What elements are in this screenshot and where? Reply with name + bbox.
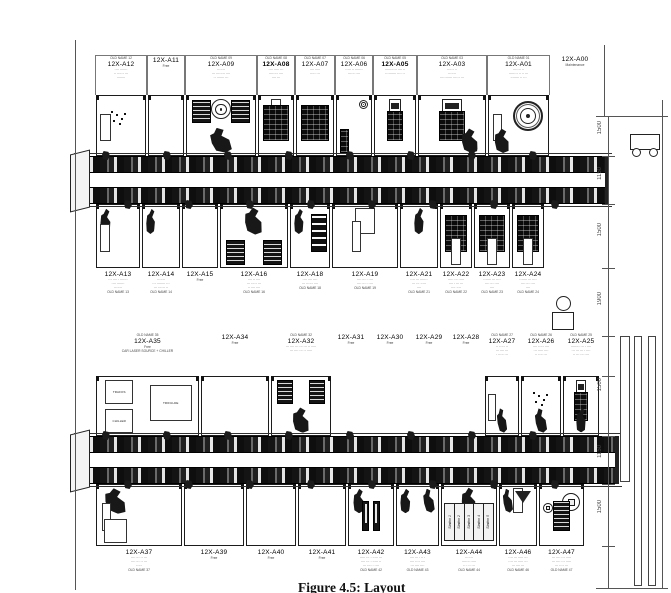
station-label-12X-A44: 12X-A44·············· ······· · ·· ···OL… xyxy=(440,548,498,590)
station-label-12X-A24: 12X-A24······· ··· ········ ··· ········… xyxy=(511,270,545,326)
cabinet-icon xyxy=(301,105,328,140)
station-box-12X-A47 xyxy=(539,484,584,546)
station-subtext: OLD NAME 21 xyxy=(399,291,439,295)
coil-icon xyxy=(359,100,369,110)
station-box-12X-A46 xyxy=(499,484,537,546)
conveyor-band xyxy=(76,436,618,453)
dimension-label: 1500 xyxy=(597,378,603,391)
cabinet-icon xyxy=(387,111,403,141)
support-column xyxy=(634,336,642,586)
station-box-12X-A06 xyxy=(336,95,372,156)
station-subtext: OLD NAME 13 xyxy=(95,291,141,295)
dimension-label: 1500 xyxy=(597,500,603,513)
fixture-icon xyxy=(226,240,244,265)
station-label-12X-A12: OLD NAME 1212X-A12···· ········· ······ … xyxy=(95,55,147,95)
dimension-tick xyxy=(602,376,615,377)
bigcoil-icon xyxy=(513,101,544,132)
station-subtext: OLD NAME 47 xyxy=(538,569,585,573)
station-subtext: Free xyxy=(148,65,184,69)
station-column: Station 1 xyxy=(445,504,454,540)
station-subtext: Maintenance xyxy=(550,64,600,68)
station-subtext: · ····· ··· xyxy=(484,354,520,358)
station-box-12X-A14 xyxy=(142,204,180,268)
station-label-12X-A11: 12X-A11Free xyxy=(147,55,185,95)
dimension-tick xyxy=(602,156,615,157)
station-subtext: OLD NAME 16 xyxy=(219,291,289,295)
station-subtext: OLD NAME 44 xyxy=(440,569,498,573)
station-subtext: OLD NAME 22 xyxy=(439,291,473,295)
station-subtext: ·· ···· ··· xyxy=(520,354,562,358)
station-subtext: ····· ··· xyxy=(296,73,334,77)
station-label-12X-A26: OLD NAME 2612X-A26···· ····· ······· ···… xyxy=(520,333,562,376)
conveyor-band xyxy=(76,187,608,204)
station-box-12X-A16 xyxy=(220,204,288,268)
dimension-label: 1150 xyxy=(597,167,603,180)
panelw-icon xyxy=(451,238,461,264)
station-label-12X-A39: 12X-A39Free xyxy=(183,548,245,590)
robot-icon xyxy=(143,208,158,234)
station-box-12X-A44: Station 1Station 2Station 3Station 4Stat… xyxy=(441,484,497,546)
trolley-wheel-icon xyxy=(556,296,571,311)
dimension-label: 1150 xyxy=(597,445,603,458)
station-label-12X-A31: 12X-A31Free xyxy=(332,333,370,376)
station-subtext: OLD NAME 23 xyxy=(473,291,511,295)
station-label-12X-A18: 12X-A18···· ···· ······· ······ ····OLD … xyxy=(289,270,331,326)
station-label-12X-A41: 12X-A41Free xyxy=(297,548,347,590)
station-box-12X-A03 xyxy=(418,95,486,156)
support-column xyxy=(648,336,656,586)
top-extension-line xyxy=(604,45,605,116)
fixture-icon xyxy=(553,501,570,531)
station-label-12X-A19: 12X-A19···· ··· · ········ ··· · ····OLD… xyxy=(331,270,399,326)
station-label-12X-A09: OLD NAME 0912X-A09·········· ········ ··… xyxy=(185,55,257,95)
trolley-body xyxy=(552,312,574,330)
station-label-12X-A40: 12X-A40Free xyxy=(245,548,297,590)
station-box-12X-A37 xyxy=(96,484,182,546)
station-label-12X-A29: 12X-A29Free xyxy=(410,333,448,376)
station-label-12X-A15: 12X-A15Free xyxy=(181,270,219,326)
station-subtext: OLD NAME 18 xyxy=(289,287,331,291)
station-subtext: ·········· ···· ·· xyxy=(374,73,416,77)
funnel-icon xyxy=(513,488,524,513)
station-label-12X-A16: 12X-A16···· ·· ······· ····· ····· ···· … xyxy=(219,270,289,326)
robot-icon xyxy=(210,128,232,153)
station-box-12X-A34 xyxy=(201,376,269,436)
station-subtext: OLD NAME 43 xyxy=(395,569,440,573)
station-box-12X-A24 xyxy=(512,204,544,268)
station-box-12X-A15 xyxy=(182,204,218,268)
station-box-12X-A08 xyxy=(258,95,294,156)
station-label-12X-A13: 12X-A13··· ···· · ··········· ··········… xyxy=(95,270,141,326)
conveyor-band xyxy=(76,467,618,484)
station-box-12X-A05 xyxy=(374,95,416,156)
dimension-label: 1900 xyxy=(597,292,603,305)
station-column: Station 2 xyxy=(455,504,464,540)
station-label-12X-A07: OLD NAME 0712X-A07···· ·········· ··· xyxy=(295,55,335,95)
station-subtext: Free xyxy=(332,342,370,346)
dimension-tick xyxy=(602,116,615,117)
station-box-12X-A22 xyxy=(440,204,472,268)
robot-icon xyxy=(411,207,427,235)
station-subtext: OLD NAME 42 xyxy=(347,569,395,573)
station-subtext: ········ ·· ··· xyxy=(488,77,549,81)
station-label-12X-A30: 12X-A30Free xyxy=(370,333,410,376)
robot-icon xyxy=(242,206,267,236)
station-label-12X-A47: 12X-A47··· ···· ··· ········ ···· ··· ··… xyxy=(538,548,585,590)
cabstack-icon xyxy=(311,214,327,252)
cabinet-icon xyxy=(439,111,465,141)
coil-icon xyxy=(211,99,231,119)
station-label-12X-A43: 12X-A43···· ··· · ·· ····· ···· ······· … xyxy=(395,548,440,590)
station-box-12X-A18 xyxy=(290,204,330,268)
factory-layout-drawing: Figure 4.5: Layout OLD NAME 1212X-A12···… xyxy=(0,0,671,593)
fixture-icon xyxy=(192,100,211,124)
robot-icon xyxy=(398,488,414,514)
station-subtext: OLD NAME 37 xyxy=(95,569,183,573)
station-subtext: Free xyxy=(370,342,410,346)
conveyor-rail xyxy=(74,486,622,487)
station-box-12X-A35: TRAFOSCHILLERTRIFULDE xyxy=(96,376,199,436)
station-label-12X-A06: OLD NAME 0612X-A06····· ·· ·············… xyxy=(335,55,373,95)
room-icon: TRIFULDE xyxy=(150,385,192,421)
station-box-12X-A25 xyxy=(563,376,599,436)
room-icon: CHILLER xyxy=(105,409,133,432)
station-label-12X-A42: 12X-A42····· ··· · ····· ······· ··· · ·… xyxy=(347,548,395,590)
cabinet-icon xyxy=(263,105,289,140)
station-label-12X-A32: OLD NAME 3212X-A32··· ···· ··· ··· ··· ·… xyxy=(270,333,332,376)
robot-icon xyxy=(497,408,507,432)
station-box-12X-A32 xyxy=(271,376,331,436)
station-subtext: Free xyxy=(448,342,484,346)
dimension-line xyxy=(608,116,609,588)
conveyor-endcap xyxy=(615,436,619,484)
station-label-12X-A35: OLD NAME 3512X-A35FreeCAR LASER SOURCE +… xyxy=(95,333,200,376)
station-box-12X-A13 xyxy=(96,204,140,268)
station-box-12X-A41 xyxy=(298,484,346,546)
slot-icon xyxy=(488,394,496,421)
station-subtext: OLD NAME 24 xyxy=(511,291,545,295)
station-column: Station 3 xyxy=(465,504,474,540)
station-box-12X-A26 xyxy=(521,376,561,436)
station-column: Station 4 xyxy=(474,504,483,540)
station-box-12X-A21 xyxy=(400,204,438,268)
station-label-12X-A05: OLD NAME 0512X-A05··········· ···· ·····… xyxy=(373,55,417,95)
station-label-12X-A46: 12X-A46···· ··· ····· ······· ··· ····· … xyxy=(498,548,538,590)
panelw-icon xyxy=(487,238,498,264)
station-subtext: ·· ··· ··· ···· xyxy=(562,354,600,358)
robot-icon xyxy=(423,489,434,513)
station-box-12X-A43 xyxy=(396,484,439,546)
station-subtext: Free xyxy=(245,557,297,561)
outer-dimension-line xyxy=(662,100,663,588)
station-box-12X-A09 xyxy=(186,95,256,156)
station-box-12X-A42 xyxy=(348,484,394,546)
station-label-12X-A08: OLD NAME 0812X-A08···· ····· ···········… xyxy=(257,55,295,95)
dimension-tick xyxy=(602,336,615,337)
station-subtext: ·· ······· ··· xyxy=(186,77,256,81)
conveyor-return-loop xyxy=(70,430,90,493)
station-subtext: OLD NAME 14 xyxy=(141,291,181,295)
station-subtext: Free xyxy=(297,557,347,561)
station-label-12X-A22: 12X-A22····· ··· ········· · ··· ·······… xyxy=(439,270,473,326)
station-box-12X-A11 xyxy=(148,95,184,156)
conveyor-rail xyxy=(74,206,612,207)
cart-wheel-icon xyxy=(649,148,658,157)
station-label-12X-A00: 12X-A00Maintenance xyxy=(550,55,600,95)
tank-icon xyxy=(543,503,553,513)
cabinet-icon xyxy=(340,129,350,153)
dimension-tick xyxy=(602,546,615,547)
fixture-icon xyxy=(231,100,250,124)
robot-icon xyxy=(503,489,513,513)
dimension-tick xyxy=(602,204,615,205)
station-subtext: ···· ··· xyxy=(258,77,294,81)
station-subtext: Free xyxy=(410,342,448,346)
panelw-icon xyxy=(104,519,128,543)
station-label-12X-A25: OLD NAME 2512X-A25········ ··· · ·······… xyxy=(562,333,600,376)
panelw-icon xyxy=(100,224,110,253)
fixture-icon xyxy=(277,380,293,403)
dimension-label: 1500 xyxy=(597,223,603,236)
dots-icon xyxy=(111,111,130,141)
station-label-12X-A34: 12X-A34Free xyxy=(200,333,270,376)
robot-icon xyxy=(292,208,308,234)
station-subtext: ······ ···· xyxy=(336,73,372,77)
station-label-12X-A23: 12X-A23······· ··· ········ ··· ········… xyxy=(473,270,511,326)
conveyor-band xyxy=(76,156,608,173)
station-subtext: ··········· ······ ··· xyxy=(418,77,486,81)
station-subtext: Free xyxy=(181,279,219,283)
left-frame-line xyxy=(75,40,76,590)
fixture-icon xyxy=(263,240,281,265)
panelw-icon xyxy=(523,238,533,264)
towers-icon xyxy=(362,501,380,531)
station-label-12X-A21: 12X-A21···· ··· ·········· ··· ·········… xyxy=(399,270,439,326)
panelw-icon xyxy=(100,114,112,141)
conveyor-return-loop xyxy=(70,150,90,213)
dimension-tick xyxy=(602,268,615,269)
station-box-12X-A27 xyxy=(485,376,519,436)
station-box-12X-A39 xyxy=(184,484,244,546)
slot-icon xyxy=(352,221,361,252)
station-label-12X-A01: OLD NAME 0112X-A01······· ·········· ·· … xyxy=(487,55,550,95)
station-column: Station 5 xyxy=(484,504,493,540)
station-label-12X-A03: OLD NAME 0312X-A03······ ···············… xyxy=(417,55,487,95)
station-subtext: Free xyxy=(200,342,270,346)
station-box-12X-A01 xyxy=(488,95,549,156)
station-label-12X-A27: OLD NAME 2712X-A27·· ····· ····· ···· ··… xyxy=(484,333,520,376)
station-label-12X-A14: 12X-A14·········· ········ ······ ······… xyxy=(141,270,181,326)
station-subtext: OLD NAME 19 xyxy=(331,287,399,291)
station-subtext: ········ xyxy=(96,77,146,81)
dimension-label: 1500 xyxy=(597,121,603,134)
stations-icon: Station 1Station 2Station 3Station 4Stat… xyxy=(444,503,494,541)
dimension-tick xyxy=(602,484,615,485)
station-box-12X-A19 xyxy=(332,204,398,268)
support-column xyxy=(620,336,630,482)
dimension-tick xyxy=(602,436,615,437)
room-icon: TRAFOS xyxy=(105,380,133,403)
station-label-12X-A37: 12X-A37···· ··· ·· ······· ··· ·· ······… xyxy=(95,548,183,590)
station-label-12X-A28: 12X-A28Free xyxy=(448,333,484,376)
station-subtext: ··· ···· ··· ·· ····· xyxy=(270,350,332,354)
station-subtext: Free xyxy=(183,557,245,561)
station-box-12X-A07 xyxy=(296,95,334,156)
station-box-12X-A40 xyxy=(246,484,296,546)
station-box-12X-A12 xyxy=(96,95,146,156)
fixture-icon xyxy=(309,380,325,403)
robot-icon xyxy=(289,407,312,435)
station-subtext: CAR LASER SOURCE + CHILLER xyxy=(95,350,200,354)
cart-wheel-icon xyxy=(632,148,641,157)
station-box-12X-A23 xyxy=(474,204,510,268)
dimension-tick xyxy=(602,588,615,589)
station-subtext: OLD NAME 46 xyxy=(498,569,538,573)
